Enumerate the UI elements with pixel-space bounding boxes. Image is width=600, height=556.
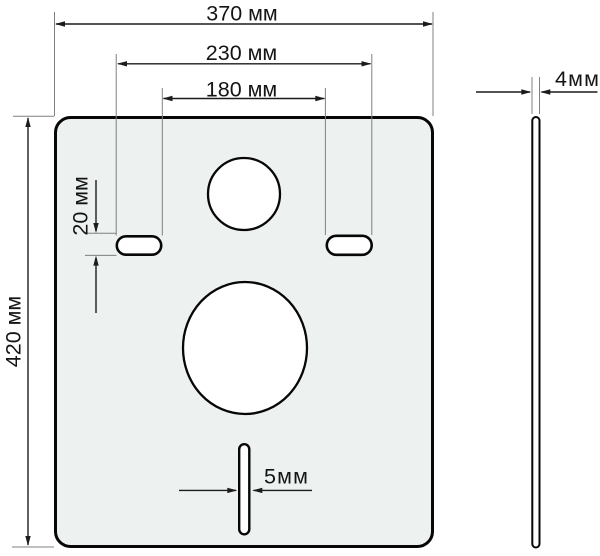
svg-text:420 мм: 420 мм <box>2 296 26 367</box>
svg-text:20 мм: 20 мм <box>68 176 92 235</box>
svg-text:4мм: 4мм <box>555 67 600 91</box>
svg-text:370 мм: 370 мм <box>206 2 277 26</box>
svg-text:180 мм: 180 мм <box>206 78 277 102</box>
svg-text:5мм: 5мм <box>264 465 309 489</box>
svg-text:230 мм: 230 мм <box>206 41 277 65</box>
